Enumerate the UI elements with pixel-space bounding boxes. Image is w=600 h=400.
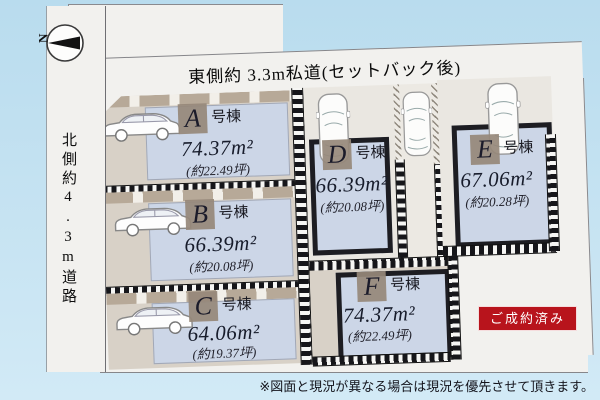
lot-b-area: 66.39m² [144, 231, 297, 257]
lot-f-suffix: 号棟 [390, 277, 421, 293]
lot-d-tsubo: (約20.08坪) [293, 198, 411, 215]
lot-a: A 号棟 74.37m² (約22.49坪) [99, 90, 294, 186]
lot-b-suffix: 号棟 [218, 205, 249, 221]
lot-d-suffix: 号棟 [355, 145, 386, 161]
lot-f-letter: F [357, 271, 387, 302]
lot-e-letter: E [470, 134, 500, 165]
lot-c: C 号棟 64.06m² (約19.37坪) [106, 287, 301, 370]
lot-e-suffix: 号棟 [503, 140, 534, 156]
lot-c-area: 64.06m² [147, 320, 300, 346]
lot-d-area: 66.39m² [292, 172, 411, 197]
lot-b-letter: B [185, 199, 215, 230]
lot-d: D 号棟 66.39m² (約20.08坪) [303, 85, 399, 261]
lot-e-area: 67.06m² [440, 167, 553, 192]
disclaimer-note: ※図面と現況が異なる場合は現況を優先させて頂きます。 [259, 376, 594, 395]
compass-icon: N [34, 20, 92, 66]
lot-a-area: 74.37m² [141, 135, 294, 161]
lot-c-letter: C [188, 291, 218, 322]
lot-f-area: 74.37m² [319, 302, 440, 327]
north-label: N [36, 33, 51, 43]
compass: N [34, 20, 92, 66]
sold-badge-label: ご成約済み [490, 311, 565, 326]
sold-badge: ご成約済み [478, 306, 577, 331]
road-left-label: 北側約4.3m道路 [58, 132, 79, 342]
lot-a-letter: A [178, 103, 208, 134]
lot-d-letter: D [322, 139, 352, 170]
lot-e: E 号棟 67.06m² (約20.28坪) [437, 76, 557, 246]
lot-f: F 号棟 74.37m² (約22.49坪) [310, 266, 451, 359]
lot-b: B 号棟 66.39m² (約20.08坪) [103, 186, 298, 287]
plot-map: 東側約 3.3m私道(セットバック後) A 号棟 [0, 0, 600, 400]
lot-c-suffix: 号棟 [221, 297, 252, 313]
lot-a-tsubo: (約22.49坪) [142, 161, 294, 179]
lot-a-suffix: 号棟 [211, 110, 242, 126]
